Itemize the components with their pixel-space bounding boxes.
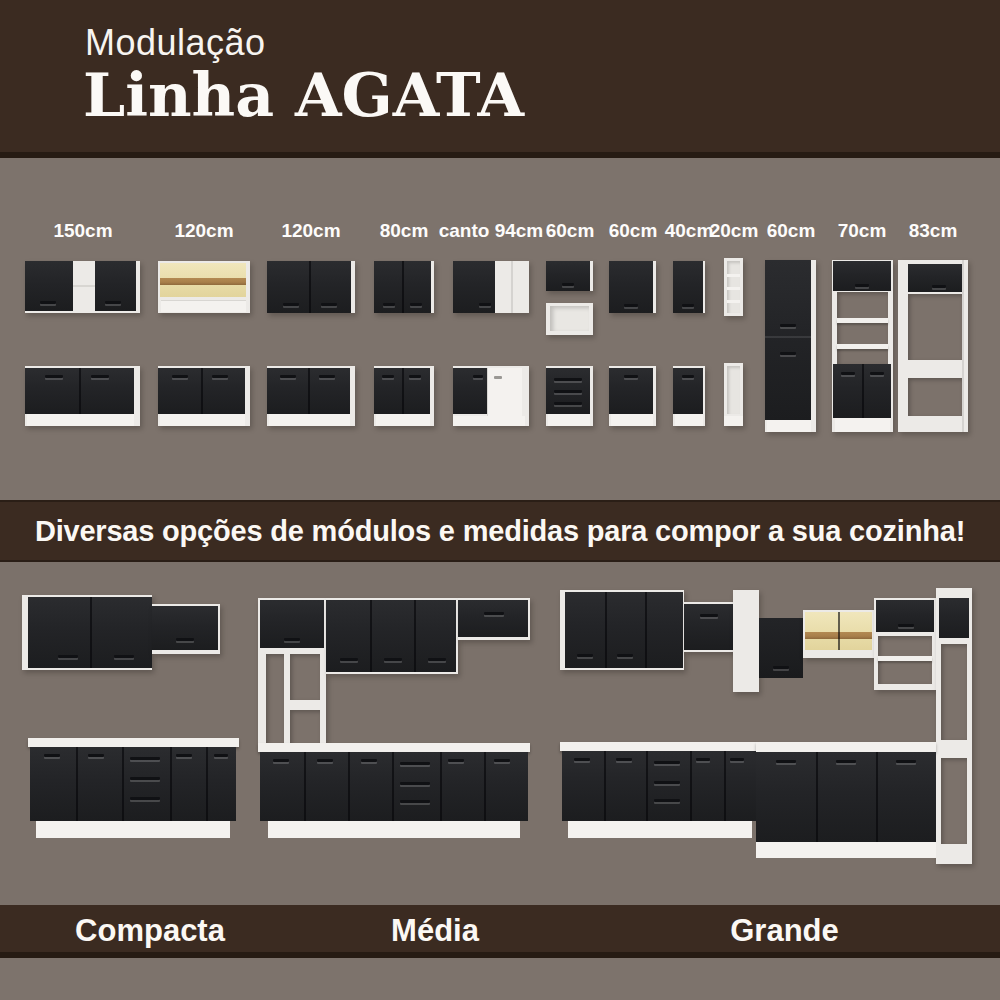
wall-cabinet	[609, 261, 656, 313]
base-shelf-unit	[724, 363, 743, 426]
banner-text: Diversas opções de módulos e medidas par…	[35, 515, 965, 548]
wall-cabinet-step	[458, 598, 530, 640]
base-cabinet	[267, 366, 355, 426]
module-83cm-fridge-frame	[898, 158, 968, 448]
open-niche	[546, 303, 593, 335]
module-70cm-tower	[832, 158, 893, 448]
wall-cabinet-step	[152, 604, 220, 654]
base-drawer-unit	[546, 366, 593, 426]
base-corner-cabinet	[453, 366, 529, 426]
module-120cm	[267, 158, 355, 448]
agata-product-image: Modulação Linha AGATA 150cm 120cm 120cm …	[0, 0, 1000, 1000]
countertop-left	[560, 742, 758, 751]
wall-shelf-unit	[724, 258, 743, 316]
base-cabinet	[25, 366, 140, 426]
module-40cm	[673, 158, 705, 448]
module-canto-94cm	[453, 158, 529, 448]
kitchen-names-banner: Compacta Média Grande	[0, 905, 1000, 952]
header-kicker: Modulação	[85, 22, 266, 64]
header-banner: Modulação Linha AGATA	[0, 0, 1000, 152]
wall-cabinet	[25, 261, 140, 313]
corner-wall-cabinet	[759, 618, 803, 678]
wall-cabinet	[267, 261, 355, 313]
base-cabinet	[158, 366, 250, 426]
wall-cabinet-run	[22, 595, 152, 670]
base-cabinet	[609, 366, 656, 426]
plinth-right	[756, 842, 936, 858]
fridge-frame	[898, 260, 968, 432]
wall-cabinet-run	[326, 598, 458, 674]
wall-cabinet-glass	[158, 261, 250, 313]
module-120cm-glass	[158, 158, 250, 448]
module-80cm	[374, 158, 434, 448]
wall-cabinet	[374, 261, 434, 313]
kitchens-section	[0, 562, 1000, 905]
module-20cm-shelves	[724, 158, 743, 448]
base-cabinet-run	[260, 752, 528, 821]
wall-cabinet-run-left	[560, 590, 684, 670]
wall-cabinet	[546, 261, 593, 291]
footer-strip	[0, 958, 1000, 1000]
tower-cabinet	[832, 260, 893, 432]
module-60cm-nicho	[546, 158, 593, 448]
fridge-tower	[936, 588, 972, 864]
wall-corner-cabinet	[453, 261, 529, 313]
module-150cm	[25, 158, 140, 448]
plinth	[36, 821, 230, 838]
base-cabinet	[673, 366, 705, 426]
base-run-right	[756, 752, 936, 842]
base-cabinet	[374, 366, 434, 426]
wall-cabinet-step	[684, 602, 736, 652]
plinth-left	[568, 821, 752, 838]
open-wall-shelf	[874, 598, 936, 690]
page-title: Linha AGATA	[83, 60, 524, 130]
wall-cabinet	[673, 261, 705, 313]
modules-section: 150cm 120cm 120cm 80cm canto 94cm 60cm 6…	[0, 158, 1000, 500]
glass-wall-cabinet	[803, 610, 874, 658]
kitchen-name-media: Média	[375, 913, 495, 949]
kitchen-name-compacta: Compacta	[70, 913, 230, 949]
countertop	[28, 738, 239, 747]
countertop-right	[756, 742, 936, 752]
middle-banner: Diversas opções de módulos e medidas par…	[0, 500, 1000, 562]
countertop	[258, 743, 530, 752]
corner-panel	[733, 590, 759, 692]
module-60cm-tall-pantry	[765, 158, 816, 448]
module-60cm	[609, 158, 656, 448]
base-cabinet-run	[30, 747, 236, 821]
plinth	[268, 821, 520, 838]
base-run-left	[562, 751, 756, 821]
oven-tower	[258, 598, 326, 744]
kitchen-name-grande: Grande	[712, 913, 857, 949]
tall-cabinet	[765, 260, 816, 432]
